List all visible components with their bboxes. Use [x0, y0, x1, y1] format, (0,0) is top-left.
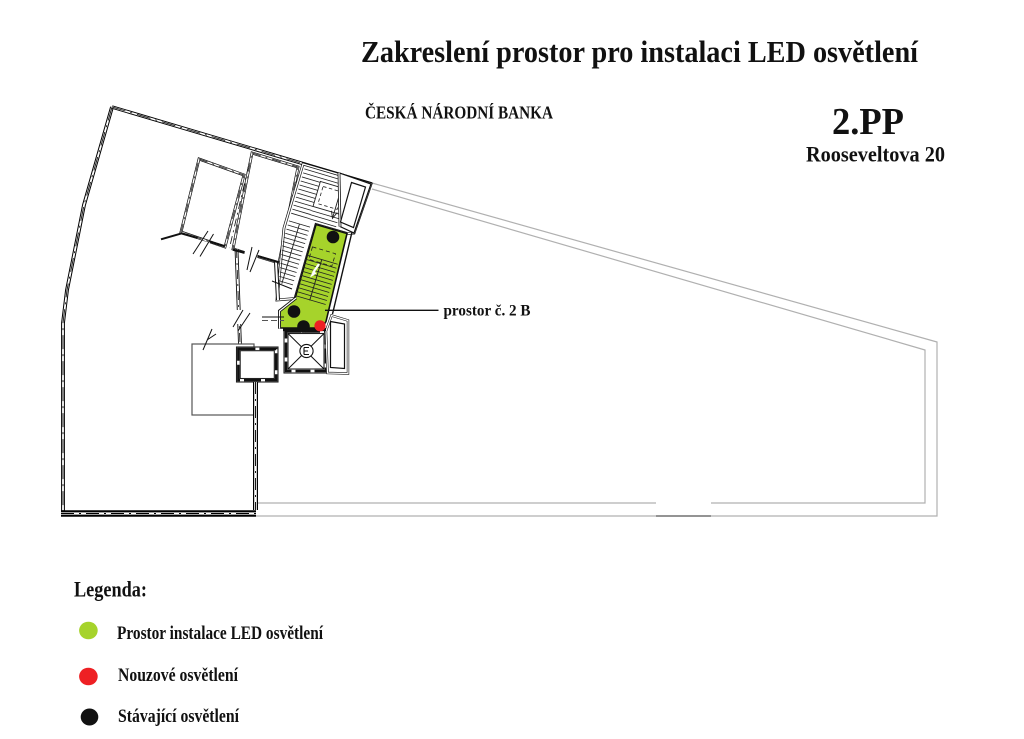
- svg-text:Prostor instalace LED osvětlen: Prostor instalace LED osvětlení: [117, 624, 324, 644]
- svg-text:2.PP: 2.PP: [832, 101, 904, 143]
- svg-text:prostor č. 2 B: prostor č. 2 B: [444, 302, 531, 319]
- svg-text:Legenda:: Legenda:: [74, 577, 147, 602]
- svg-text:Stávající osvětlení: Stávající osvětlení: [118, 707, 240, 727]
- svg-text:ČESKÁ NÁRODNÍ BANKA: ČESKÁ NÁRODNÍ BANKA: [365, 102, 553, 123]
- svg-text:Rooseveltova 20: Rooseveltova 20: [806, 142, 945, 167]
- svg-text:Zakreslení prostor pro instala: Zakreslení prostor pro instalaci LED osv…: [361, 34, 918, 69]
- svg-text:Nouzové osvětlení: Nouzové osvětlení: [118, 666, 239, 686]
